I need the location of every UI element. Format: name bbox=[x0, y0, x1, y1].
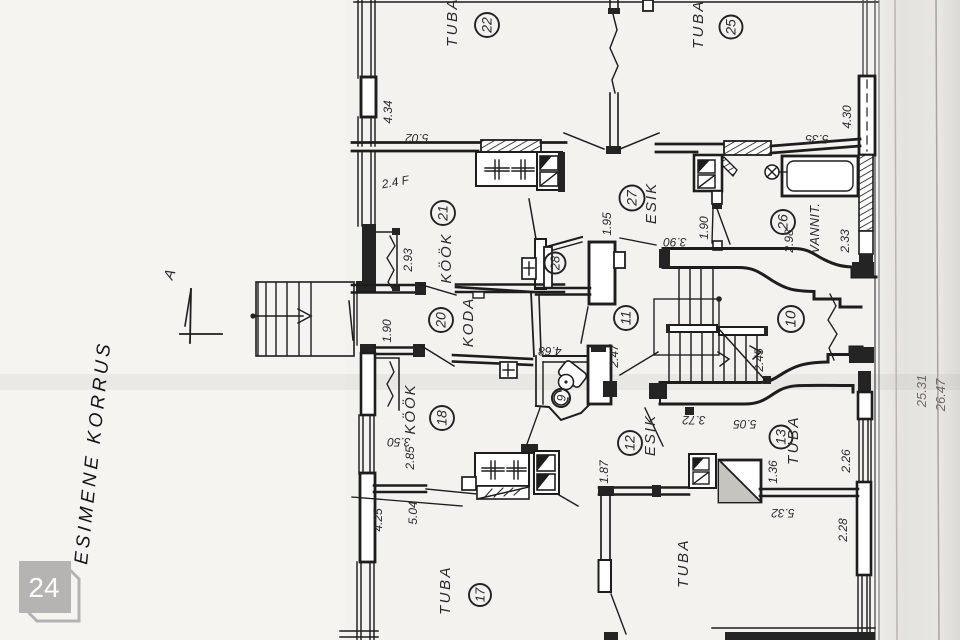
svg-text:26.47: 26.47 bbox=[933, 378, 948, 412]
svg-text:2.47: 2.47 bbox=[607, 343, 621, 369]
svg-text:1.95: 1.95 bbox=[600, 212, 614, 236]
svg-text:4.68: 4.68 bbox=[538, 344, 562, 358]
svg-text:TUBA: TUBA bbox=[690, 0, 707, 49]
svg-text:20: 20 bbox=[433, 312, 449, 329]
svg-text:4.30: 4.30 bbox=[840, 105, 854, 129]
svg-text:4.34: 4.34 bbox=[381, 100, 395, 124]
svg-text:ESIK: ESIK bbox=[642, 414, 659, 456]
svg-text:10: 10 bbox=[783, 310, 800, 327]
svg-text:TUBA: TUBA bbox=[437, 565, 454, 615]
svg-text:KÖÖK: KÖÖK bbox=[437, 232, 455, 283]
svg-text:12: 12 bbox=[622, 435, 638, 451]
svg-text:5.05: 5.05 bbox=[733, 417, 757, 431]
svg-text:17: 17 bbox=[473, 587, 488, 602]
svg-text:TUBA: TUBA bbox=[785, 415, 802, 465]
svg-text:25: 25 bbox=[723, 19, 739, 36]
svg-text:2.28: 2.28 bbox=[836, 518, 850, 543]
svg-text:3.90: 3.90 bbox=[663, 235, 687, 249]
svg-text:TUBA: TUBA bbox=[675, 538, 692, 588]
svg-text:22: 22 bbox=[479, 17, 495, 34]
svg-text:4.25: 4.25 bbox=[371, 508, 385, 532]
svg-text:21: 21 bbox=[435, 205, 451, 222]
svg-text:1.90: 1.90 bbox=[380, 319, 394, 343]
svg-text:2.98: 2.98 bbox=[782, 229, 796, 254]
svg-text:25.31: 25.31 bbox=[914, 375, 929, 409]
svg-text:1.90: 1.90 bbox=[697, 216, 711, 240]
svg-text:27: 27 bbox=[624, 189, 640, 207]
svg-text:2.26: 2.26 bbox=[839, 449, 853, 474]
svg-text:11: 11 bbox=[618, 311, 634, 326]
svg-text:9: 9 bbox=[555, 394, 569, 401]
svg-text:26: 26 bbox=[775, 214, 791, 231]
svg-text:2.45: 2.45 bbox=[752, 348, 766, 373]
svg-text:KODA: KODA bbox=[460, 297, 477, 348]
svg-text:2.85: 2.85 bbox=[403, 446, 417, 471]
svg-text:5.35: 5.35 bbox=[805, 132, 829, 146]
svg-text:18: 18 bbox=[434, 410, 450, 426]
svg-text:5.04: 5.04 bbox=[406, 501, 420, 525]
svg-text:2.33: 2.33 bbox=[838, 229, 852, 254]
svg-text:3.72: 3.72 bbox=[682, 413, 706, 427]
svg-text:5.02: 5.02 bbox=[405, 131, 429, 145]
svg-text:1.87: 1.87 bbox=[597, 459, 611, 484]
svg-text:2.93: 2.93 bbox=[401, 248, 415, 273]
svg-text:VANNIT.: VANNIT. bbox=[808, 203, 822, 254]
svg-text:24: 24 bbox=[28, 572, 59, 603]
svg-text:TUBA: TUBA bbox=[444, 0, 461, 47]
svg-text:KÖÖK: KÖÖK bbox=[401, 383, 419, 434]
svg-text:ESIK: ESIK bbox=[643, 182, 660, 224]
svg-text:1.36: 1.36 bbox=[766, 460, 780, 484]
svg-text:28: 28 bbox=[548, 255, 563, 271]
svg-text:5.32: 5.32 bbox=[771, 506, 795, 520]
